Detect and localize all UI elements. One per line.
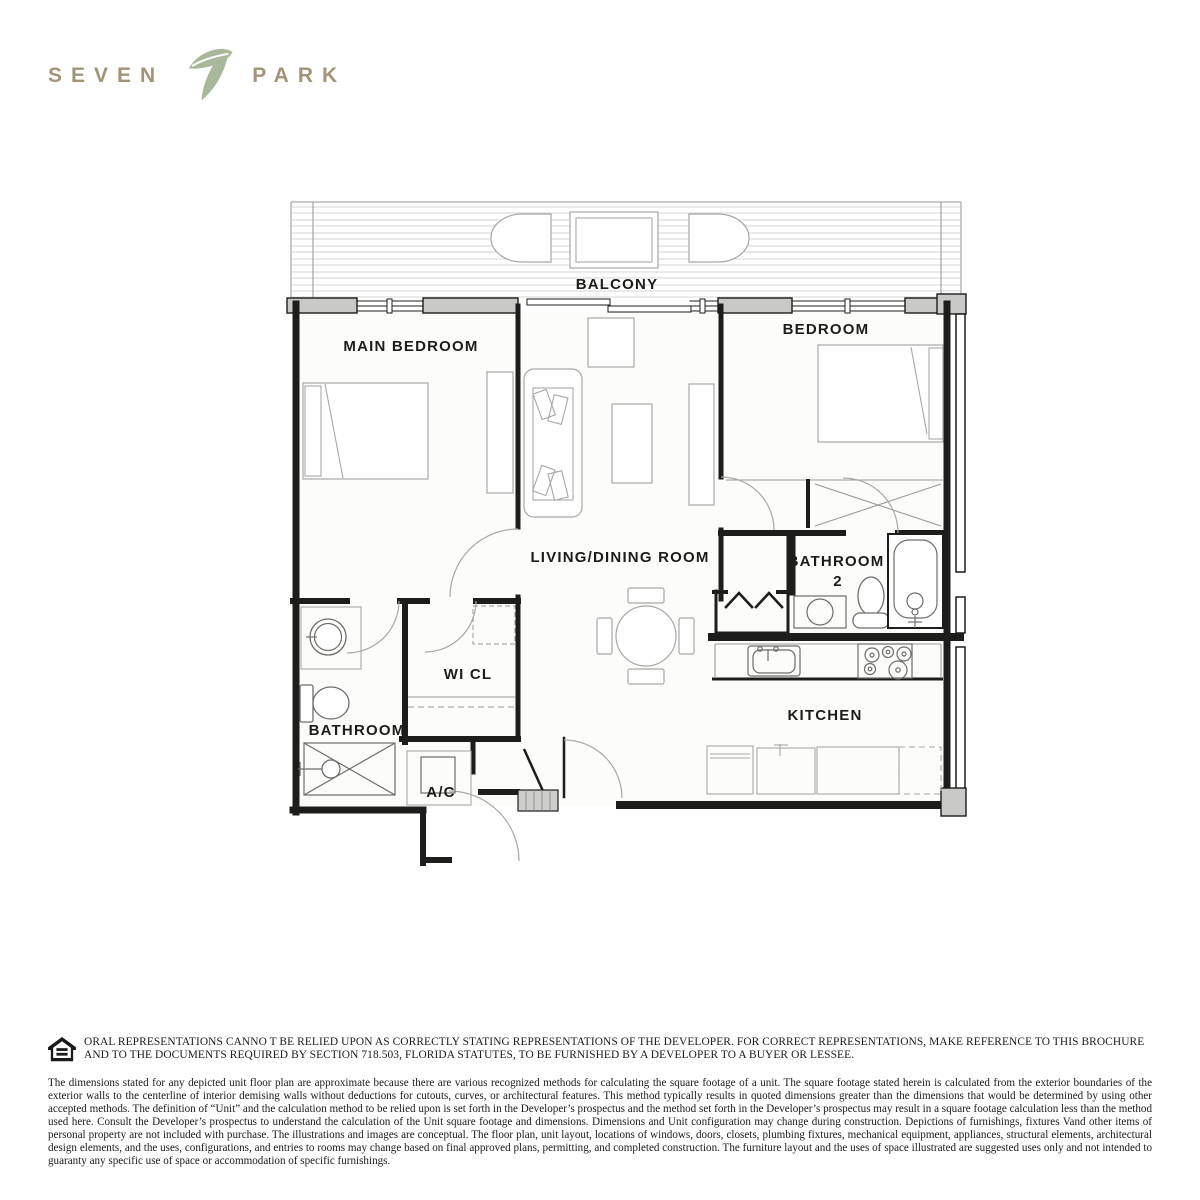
- wall-pier: [718, 298, 792, 313]
- room-label-main-bedroom: MAIN BEDROOM: [343, 338, 478, 355]
- bedroom-bed: [818, 345, 943, 442]
- balcony-furniture: [491, 212, 749, 268]
- wall-pier: [937, 294, 966, 314]
- equal-housing-icon: [48, 1037, 76, 1064]
- room-label-bathroom2: BATHROOM: [788, 553, 885, 570]
- sofa: [524, 369, 582, 517]
- tv-console: [689, 384, 714, 505]
- window-mullion: [700, 299, 705, 313]
- wall-pier: [905, 298, 938, 313]
- leaf-monogram-icon: [180, 40, 242, 104]
- brand-logo: SEVEN PARK: [48, 40, 346, 104]
- wall-pier: [423, 298, 518, 313]
- side-table: [588, 318, 634, 367]
- disclaimer-block: ORAL REPRESENTATIONS CANNO T BE RELIED U…: [48, 1036, 1152, 1168]
- room-label-wicl: WI CL: [444, 666, 493, 683]
- disclaimer-body-text: The dimensions stated for any depicted u…: [48, 1077, 1152, 1168]
- toilet-icon: [300, 685, 349, 722]
- bathtub-icon: [888, 534, 943, 628]
- room-label-bathroom2-number: 2: [833, 573, 843, 590]
- main-bedroom-bed: [303, 383, 428, 479]
- brochure-page: { "logo": { "word_left": "SEVEN", "word_…: [0, 0, 1200, 1200]
- window-mullion: [387, 299, 392, 313]
- room-label-kitchen: KITCHEN: [787, 707, 862, 724]
- entry-threshold: [518, 790, 558, 811]
- balcony-slider-door: [527, 299, 691, 312]
- brand-word-park: PARK: [252, 59, 346, 86]
- brand-word-seven: SEVEN: [48, 59, 164, 86]
- legal-notice-text: ORAL REPRESENTATIONS CANNO T BE RELIED U…: [84, 1036, 1152, 1063]
- dresser: [487, 372, 513, 493]
- room-label-bedroom: BEDROOM: [783, 321, 870, 338]
- window-mullion: [845, 299, 850, 313]
- room-label-bathroom: BATHROOM: [309, 722, 406, 739]
- floor-plan: BALCONY MAIN BEDROOM BEDROOM LIVING/DINI…: [280, 195, 970, 885]
- room-label-living-dining: LIVING/DINING ROOM: [530, 549, 709, 566]
- room-label-ac: A/C: [426, 784, 455, 801]
- coffee-table: [612, 404, 652, 483]
- room-label-balcony: BALCONY: [576, 276, 659, 293]
